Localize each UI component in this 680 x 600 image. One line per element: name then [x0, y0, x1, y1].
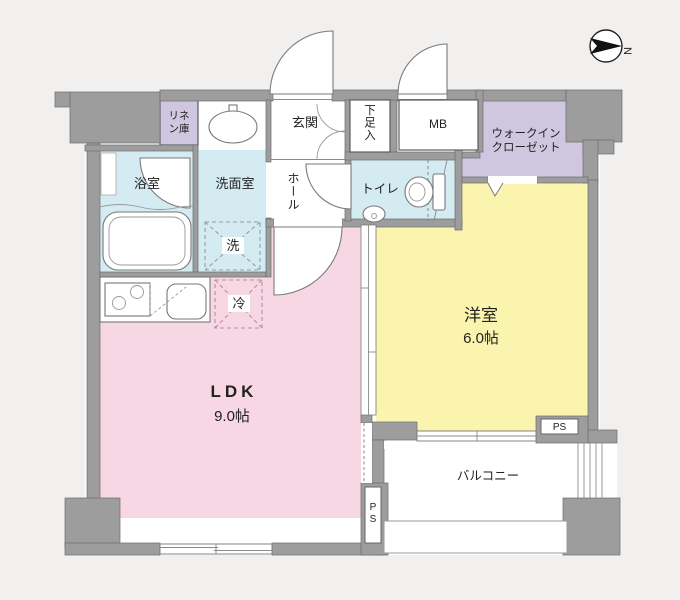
bath-counter: [101, 153, 116, 195]
wall: [87, 143, 100, 505]
pipe-space-bottom-label: PS: [368, 502, 379, 526]
wall: [583, 140, 598, 183]
pipe-space-right-label: PS: [553, 422, 567, 433]
toilet-tank: [433, 174, 445, 210]
wall: [332, 90, 398, 101]
kitchen-sink: [167, 284, 206, 319]
wall: [342, 219, 462, 227]
ldk-door-opening: [274, 219, 342, 227]
wall-slot: [384, 441, 410, 449]
wall: [588, 180, 598, 432]
floor-plan: N リネ ン庫 玄関 下足入 MB ウォークイン クローゼット 浴室 洗面室 ホ…: [0, 0, 680, 600]
toilet-basin: [363, 206, 385, 222]
ldk-label: LDK: [211, 382, 258, 401]
wall: [65, 543, 160, 555]
wall: [160, 90, 273, 101]
hall-label: ホール: [286, 172, 300, 211]
ps-chase: [361, 423, 372, 483]
closet-opening: [488, 176, 537, 184]
room-washroom: [198, 150, 266, 275]
wall: [566, 90, 622, 142]
wic-label-line2: クローゼット: [492, 141, 561, 154]
kitchen: [100, 277, 210, 322]
wall-pillar: [65, 498, 120, 547]
wall: [266, 100, 271, 162]
wall: [372, 422, 417, 440]
wall: [100, 272, 266, 277]
bathtub: [103, 212, 191, 270]
toilet-label: トイレ: [361, 182, 399, 196]
western-room-size-label: 6.0帖: [463, 330, 499, 347]
wall: [266, 219, 274, 227]
floor-plan-canvas: N リネ ン庫 玄関 下足入 MB ウォークイン クローゼット 浴室 洗面室 ホ…: [0, 0, 680, 600]
entrance-label: 玄関: [292, 115, 318, 130]
wall: [345, 152, 462, 160]
wall: [462, 152, 480, 158]
wall-pillar: [563, 498, 620, 555]
shoe-box-label: 下足入: [363, 104, 376, 142]
vanity-sink: [209, 111, 257, 143]
linen-label-line1: リネ: [169, 110, 190, 122]
wall: [462, 177, 488, 183]
western-room-label: 洋室: [464, 306, 498, 325]
washroom-label: 洗面室: [215, 176, 254, 191]
fridge-label: 冷: [232, 296, 245, 311]
wall: [193, 145, 198, 277]
stove: [105, 283, 150, 316]
wall: [70, 92, 160, 143]
wall: [85, 145, 198, 151]
washer-label: 洗: [226, 238, 239, 253]
compass-label: N: [621, 47, 633, 55]
wic-label-line1: ウォークイン: [492, 127, 561, 140]
linen-label-line2: ン庫: [169, 122, 190, 135]
wall: [447, 90, 566, 101]
meter-box-label: MB: [429, 117, 447, 131]
bathroom-label: 浴室: [134, 176, 160, 191]
ldk-size-label: 9.0帖: [214, 408, 250, 425]
wall: [537, 177, 588, 183]
wall: [455, 150, 462, 230]
balcony-railing: [384, 521, 567, 553]
wall: [588, 430, 617, 443]
balcony-label: バルコニー: [457, 469, 519, 483]
wall: [55, 92, 70, 107]
wall: [390, 100, 397, 152]
